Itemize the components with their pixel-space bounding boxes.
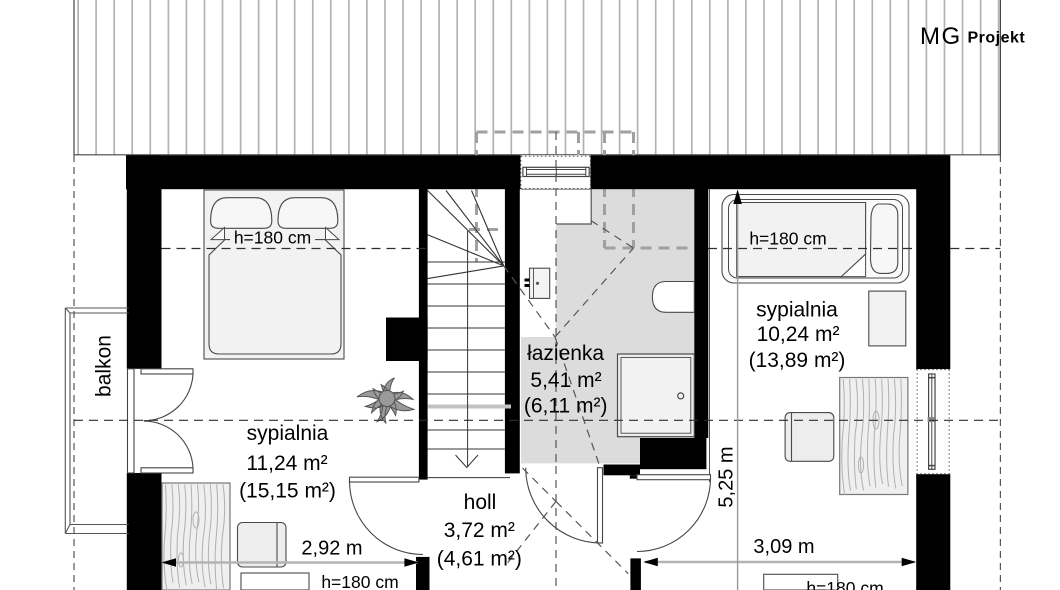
svg-text:h=180 cm: h=180 cm <box>806 578 883 590</box>
svg-text:(13,89 m²): (13,89 m²) <box>749 349 846 372</box>
svg-text:11,24 m²: 11,24 m² <box>246 452 327 475</box>
svg-text:10,24 m²: 10,24 m² <box>757 323 840 346</box>
svg-text:h=180 cm: h=180 cm <box>234 228 311 248</box>
svg-text:Projekt: Projekt <box>968 30 1026 47</box>
svg-text:balkon: balkon <box>93 335 116 397</box>
svg-text:h=180 cm: h=180 cm <box>321 572 398 590</box>
svg-text:(15,15 m²): (15,15 m²) <box>239 480 336 503</box>
svg-text:3,09 m: 3,09 m <box>753 536 814 558</box>
svg-text:5,25 m: 5,25 m <box>716 446 738 507</box>
svg-text:3,72 m²: 3,72 m² <box>444 519 515 542</box>
svg-text:(4,61 m²): (4,61 m²) <box>437 548 522 571</box>
svg-text:(6,11 m²): (6,11 m²) <box>524 395 608 418</box>
svg-text:holl: holl <box>464 491 497 514</box>
svg-text:MG: MG <box>920 23 962 50</box>
svg-text:2,92 m: 2,92 m <box>301 538 362 560</box>
svg-text:h=180 cm: h=180 cm <box>749 228 826 248</box>
svg-text:5,41 m²: 5,41 m² <box>530 369 601 392</box>
svg-text:sypialnia: sypialnia <box>247 422 329 445</box>
svg-text:sypialnia: sypialnia <box>756 299 838 322</box>
svg-text:łazienka: łazienka <box>527 342 604 365</box>
